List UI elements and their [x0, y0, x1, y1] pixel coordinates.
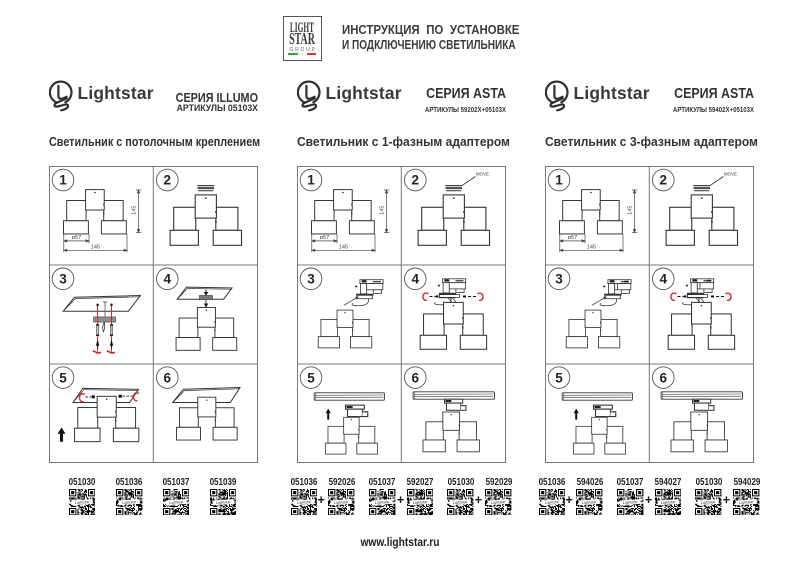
- svg-text:ø57: ø57: [320, 235, 330, 241]
- svg-text:4: 4: [660, 272, 668, 287]
- svg-text:ø57: ø57: [72, 235, 82, 241]
- svg-text:5: 5: [59, 370, 67, 385]
- svg-text:Lightstar: Lightstar: [122, 500, 138, 505]
- svg-text:Lightstar: Lightstar: [491, 500, 507, 505]
- svg-text:4: 4: [164, 272, 172, 287]
- svg-text:Lightstar: Lightstar: [739, 500, 755, 505]
- svg-text:6: 6: [412, 370, 420, 385]
- svg-text:2: 2: [164, 173, 172, 188]
- svg-text:MOVE: MOVE: [476, 172, 489, 177]
- svg-text:ø57: ø57: [568, 235, 578, 241]
- svg-text:Lightstar: Lightstar: [582, 500, 598, 505]
- svg-text:5: 5: [307, 370, 315, 385]
- svg-text:6: 6: [164, 370, 172, 385]
- svg-text:145: 145: [587, 244, 596, 250]
- svg-text:2: 2: [412, 173, 420, 188]
- svg-text:145: 145: [628, 206, 634, 215]
- svg-text:3: 3: [307, 272, 315, 287]
- svg-text:3: 3: [59, 272, 67, 287]
- svg-text:1: 1: [59, 173, 67, 188]
- svg-text:5: 5: [555, 370, 563, 385]
- svg-text:Lightstar: Lightstar: [334, 500, 350, 505]
- svg-text:MOVE: MOVE: [724, 172, 737, 177]
- svg-text:4: 4: [412, 272, 420, 287]
- svg-text:1: 1: [307, 173, 315, 188]
- svg-text:1: 1: [555, 173, 563, 188]
- svg-text:3: 3: [555, 272, 563, 287]
- svg-text:145: 145: [132, 206, 138, 215]
- svg-text:6: 6: [660, 370, 668, 385]
- svg-text:145: 145: [380, 206, 386, 215]
- svg-text:145: 145: [91, 244, 100, 250]
- svg-text:2: 2: [660, 173, 668, 188]
- svg-text:145: 145: [339, 244, 348, 250]
